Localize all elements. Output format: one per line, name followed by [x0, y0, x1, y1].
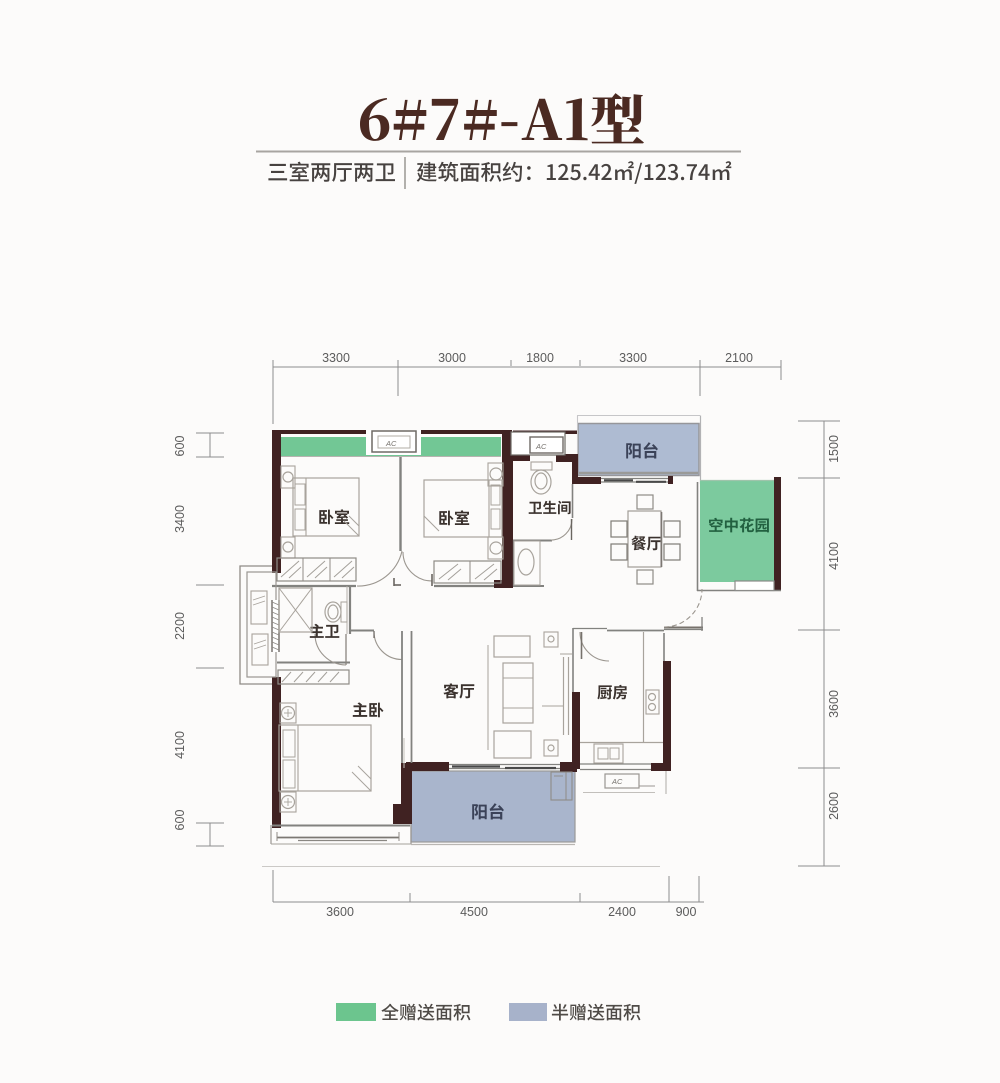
svg-text:AC: AC	[385, 439, 397, 448]
svg-text:2200: 2200	[173, 612, 187, 640]
svg-text:AC: AC	[535, 442, 547, 451]
svg-text:AC: AC	[611, 777, 623, 786]
svg-text:3300: 3300	[619, 351, 647, 365]
svg-text:600: 600	[173, 810, 187, 831]
svg-text:1500: 1500	[827, 435, 841, 463]
svg-text:2400: 2400	[608, 905, 636, 919]
svg-text:3300: 3300	[322, 351, 350, 365]
svg-text:3600: 3600	[827, 690, 841, 718]
svg-text:900: 900	[676, 905, 697, 919]
svg-text:4500: 4500	[460, 905, 488, 919]
svg-text:4100: 4100	[173, 731, 187, 759]
svg-text:600: 600	[173, 436, 187, 457]
svg-text:4100: 4100	[827, 542, 841, 570]
svg-text:3000: 3000	[438, 351, 466, 365]
svg-text:3600: 3600	[326, 905, 354, 919]
svg-text:1800: 1800	[526, 351, 554, 365]
svg-text:3400: 3400	[173, 505, 187, 533]
svg-text:2600: 2600	[827, 792, 841, 820]
svg-text:2100: 2100	[725, 351, 753, 365]
